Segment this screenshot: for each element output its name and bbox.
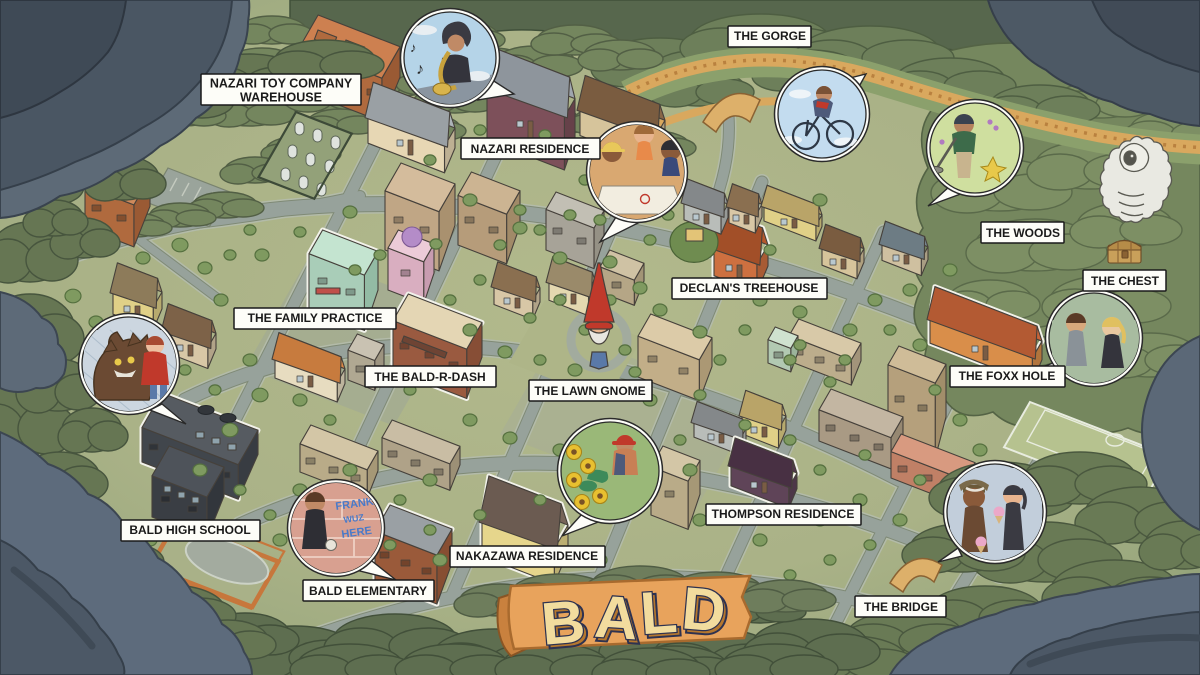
svg-text:♪: ♪ — [416, 61, 424, 78]
svg-text:THE WOODS: THE WOODS — [986, 226, 1060, 240]
svg-text:DECLAN'S TREEHOUSE: DECLAN'S TREEHOUSE — [680, 281, 819, 295]
svg-text:THE FAMILY PRACTICE: THE FAMILY PRACTICE — [248, 311, 383, 325]
svg-text:NAZARI TOY COMPANY: NAZARI TOY COMPANY — [210, 76, 353, 90]
svg-text:B: B — [539, 587, 588, 658]
svg-text:THE BALD-R-DASH: THE BALD-R-DASH — [374, 370, 485, 384]
svg-text:L: L — [638, 578, 679, 647]
svg-text:NAZARI RESIDENCE: NAZARI RESIDENCE — [471, 142, 590, 156]
svg-text:THE BRIDGE: THE BRIDGE — [864, 600, 938, 614]
svg-text:THE CHEST: THE CHEST — [1091, 274, 1160, 288]
svg-text:♪: ♪ — [410, 40, 417, 55]
svg-text:BALD ELEMENTARY: BALD ELEMENTARY — [309, 584, 427, 598]
svg-text:THOMPSON RESIDENCE: THOMPSON RESIDENCE — [712, 507, 855, 521]
svg-text:THE FOXX HOLE: THE FOXX HOLE — [959, 369, 1056, 383]
svg-text:NAKAZAWA RESIDENCE: NAKAZAWA RESIDENCE — [456, 549, 598, 563]
svg-text:BALD HIGH SCHOOL: BALD HIGH SCHOOL — [129, 523, 250, 537]
svg-text:THE GORGE: THE GORGE — [734, 29, 806, 43]
svg-text:WAREHOUSE: WAREHOUSE — [240, 90, 322, 104]
svg-text:THE LAWN GNOME: THE LAWN GNOME — [534, 384, 645, 398]
svg-text:D: D — [679, 574, 728, 645]
svg-text:A: A — [592, 583, 640, 653]
